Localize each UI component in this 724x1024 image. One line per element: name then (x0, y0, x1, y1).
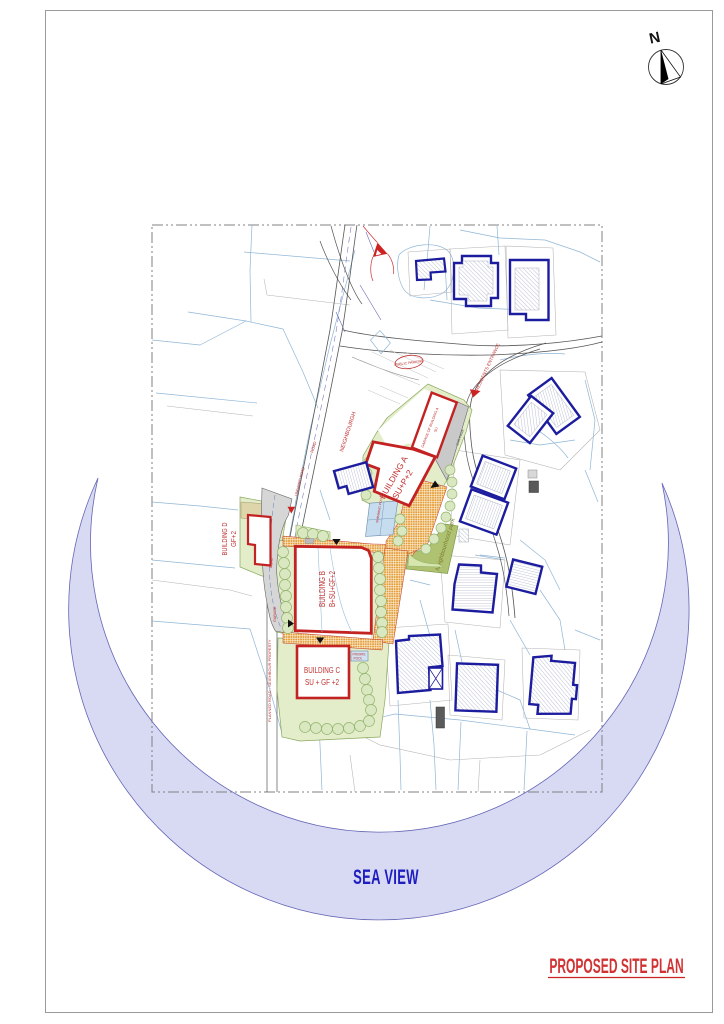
svg-text:NEIGHBOURGH: NEIGHBOURGH (339, 411, 358, 452)
svg-text:GARAGE: GARAGE (273, 606, 277, 622)
svg-text:POOL: POOL (354, 657, 363, 661)
svg-text:PROPOSED SITE PLAN: PROPOSED SITE PLAN (549, 953, 683, 978)
svg-text:BUILDING C: BUILDING C (304, 666, 340, 675)
svg-text:N: N (648, 29, 662, 48)
svg-text:PLANNED ROAD - NEIGHBOUR PROPE: PLANNED ROAD - NEIGHBOUR PROPERTY (267, 639, 272, 722)
svg-text:RESIDENTS ENTRANCE: RESIDENTS ENTRANCE (474, 342, 500, 391)
svg-text:BUILDING D: BUILDING D (220, 522, 229, 555)
svg-text:PUBLIC PARKING: PUBLIC PARKING (394, 359, 424, 367)
svg-text:B+SU+GF+2: B+SU+GF+2 (328, 571, 337, 607)
svg-text:UNNAMED ROAD: UNNAMED ROAD (294, 466, 306, 496)
svg-text:SU + GF +2: SU + GF +2 (305, 678, 339, 687)
svg-text:GF+2: GF+2 (229, 531, 238, 547)
svg-text:SEA VIEW: SEA VIEW (353, 865, 419, 889)
svg-text:ROAD: ROAD (309, 441, 317, 454)
svg-text:BUILDING B: BUILDING B (318, 571, 327, 607)
